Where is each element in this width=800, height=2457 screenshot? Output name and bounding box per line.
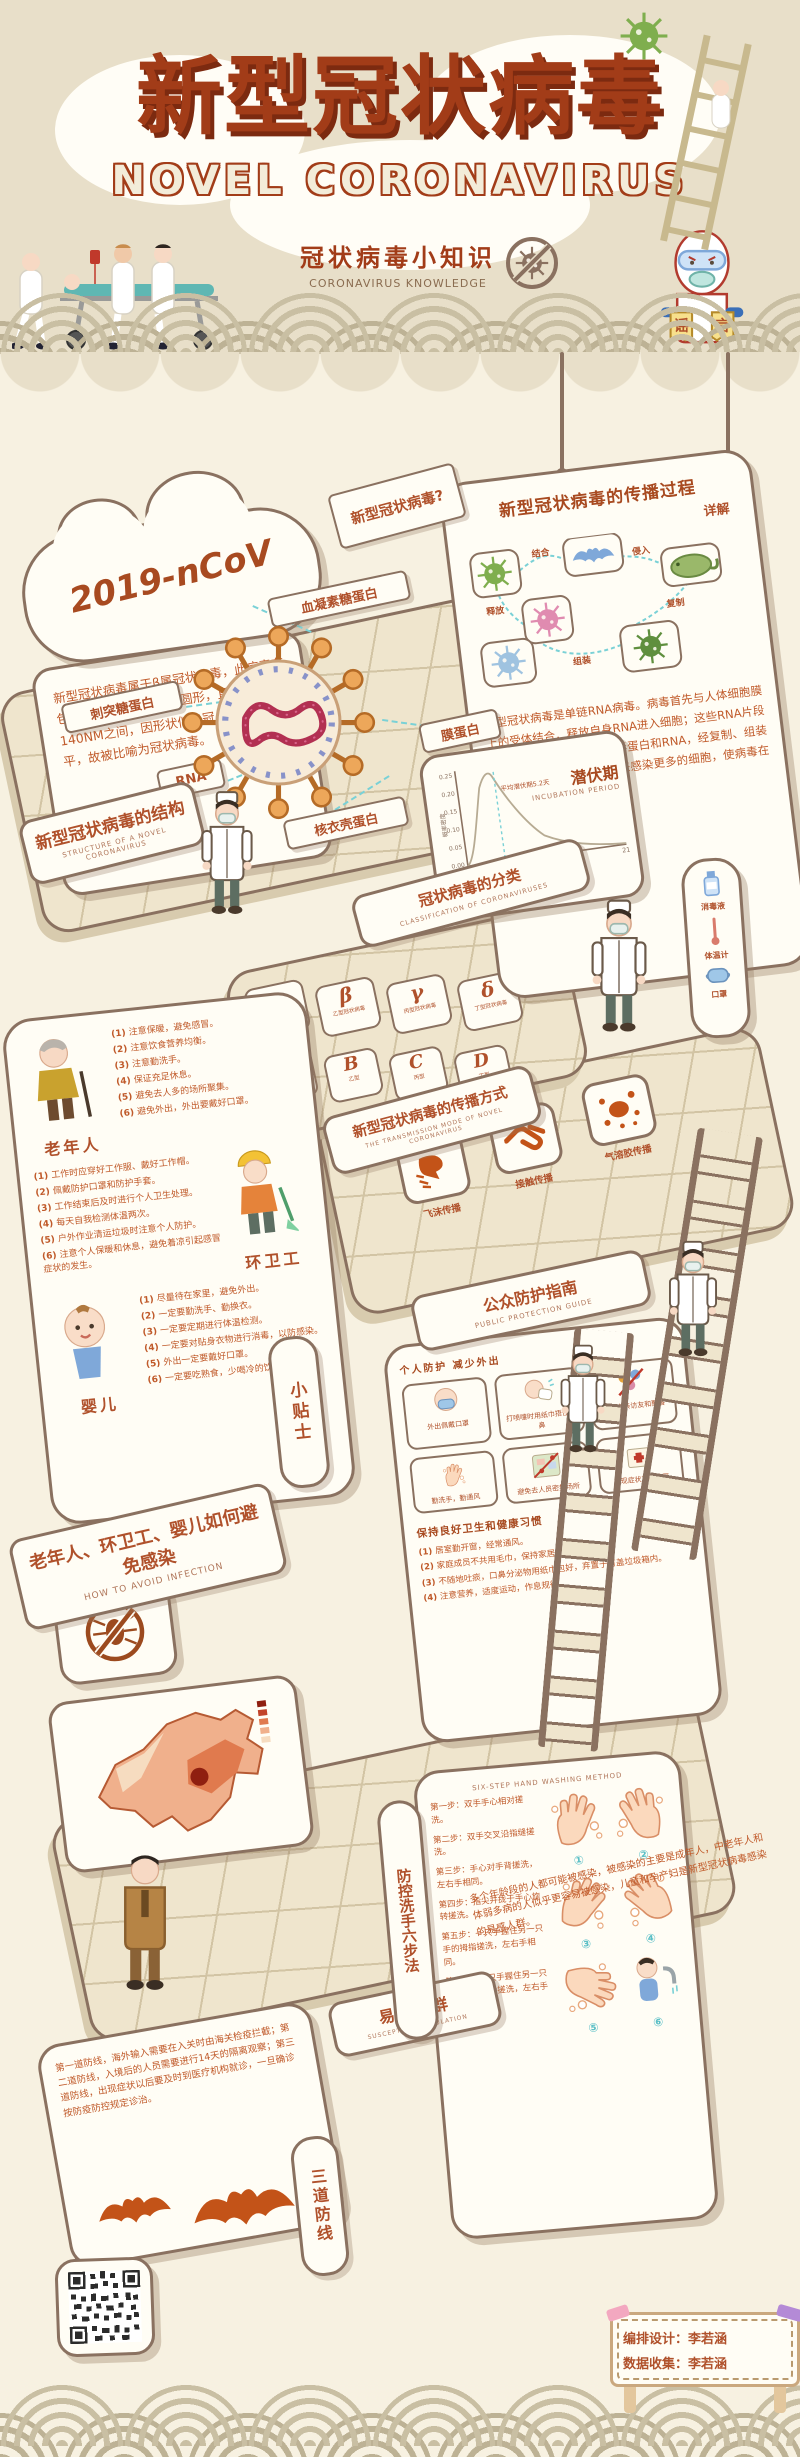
y-tick: 0.20 [441,790,455,799]
handwash-illustration: ① [543,1787,609,1870]
china-epidemic-map [61,1688,303,1862]
guide-tile-label: 勤洗手，勤通风 [419,1490,493,1508]
handwash-step: 第二步：双手交叉沿指缝搓洗。 [433,1825,539,1859]
washing-hands-icon [609,1782,670,1847]
doctor-climbing-figure [556,1342,610,1454]
doctor-figure [586,896,652,1034]
handwash-step: 第一步：双手手心相对搓洗。 [430,1793,536,1827]
qr-code-badge [54,2256,155,2357]
x-tick: 21 [622,846,631,855]
supply-label: 体温计 [693,948,740,962]
baby-figure-block: 婴儿 [47,1296,143,1420]
scallop-edge [0,352,800,396]
supply-label: 口罩 [696,987,743,1001]
washing-hands-icon [545,1787,606,1852]
spread-step-label: 复制 [665,596,685,610]
sanitation-worker-illustration [220,1145,299,1244]
group-name-baby: 婴儿 [57,1388,143,1421]
credit-data: 数据收集：李若涵 [623,2353,787,2372]
class-tile-beta: β 乙型冠状病毒 [313,975,383,1038]
thermometer-icon [702,915,728,947]
hanging-wire [560,352,564,470]
epidemic-map-panel [46,1673,315,1874]
spread-process-diagram: 结合 侵入 复制 组装 释放 [463,517,761,702]
defense-text: 第一道防线，海外输入需要在入关时由海关检疫拦截；第二道防线，入境后的人员需要进行… [54,2019,305,2121]
guide-tile-wash: 勤洗手，勤通风 [409,1450,500,1515]
doctor-figure [196,788,258,916]
easel-leg [774,2387,786,2413]
elderly-illustration [19,1031,98,1130]
washing-hands-icon [560,1959,620,2015]
spread-step-label: 组装 [572,654,592,668]
step-number: ③ [556,1935,616,1954]
disinfectant-icon [699,868,725,898]
virus-on-ladder-illustration [600,8,770,258]
step-number: ④ [621,1929,681,1948]
wash-hands-icon [435,1458,472,1491]
aerosol-transmission-icon [595,1086,642,1133]
wave-pattern-band-top [0,268,800,354]
supplies-strip: 消毒液 体温计 口罩 [680,856,752,1040]
group-name-worker: 环卫工 [231,1243,317,1276]
elderly-tips: 注意保暖，避免感冒。 注意饮食营养均衡。 注意勤洗手。 保证充足休息。 避免去人… [111,1015,255,1125]
spread-step-label: 释放 [486,604,506,618]
handwash-illustration: ⑤ [558,1954,624,2037]
spread-step-label: 侵入 [630,544,650,558]
guide-tile-mask: 外出佩戴口罩 [401,1376,493,1451]
y-tick: 0.25 [439,773,453,782]
suit-man-figure [108,1852,182,1992]
credits-board: 编排设计：李若涵 数据收集：李若涵 [610,2312,800,2413]
baby-illustration [47,1298,125,1389]
qr-code [68,2270,142,2344]
sneeze-tissue-icon [520,1375,557,1408]
guide-tile-label: 外出佩戴口罩 [411,1417,485,1435]
class-tile-b: B 乙型 [322,1046,385,1104]
spread-step-label: 结合 [531,546,551,560]
elderly-figure-block: 老年人 [19,1030,116,1162]
easel-leg [624,2387,636,2413]
worker-tips: 工作时应穿好工作服、戴好工作帽。 佩戴防护口罩和防护手套。 工作结束后及时进行个… [33,1153,223,1281]
handwash-illustration: ⑥ [623,1949,689,2032]
mode-aerosol: 气溶胶传播 [574,1071,667,1167]
defense-sign: 三道防线 [289,2134,351,2278]
mask-face-icon [427,1385,464,1418]
worker-figure-block: 环卫工 [220,1143,317,1275]
child-washing-icon [627,1949,682,2013]
mask-icon [703,964,732,986]
coronavirus-infographic: 新型冠状病毒 NOVEL CORONAVIRUS 冠状病毒小知识 CORONAV… [0,0,800,2457]
y-tick: 0.05 [449,844,463,853]
group-name-elderly: 老年人 [30,1129,116,1162]
step-number: ⑤ [563,2018,623,2037]
doctor-climbing-figure [664,1238,722,1358]
step-number: ⑥ [628,2013,688,2032]
supply-label: 消毒液 [690,900,737,914]
credit-design: 编排设计：李若涵 [623,2327,787,2353]
